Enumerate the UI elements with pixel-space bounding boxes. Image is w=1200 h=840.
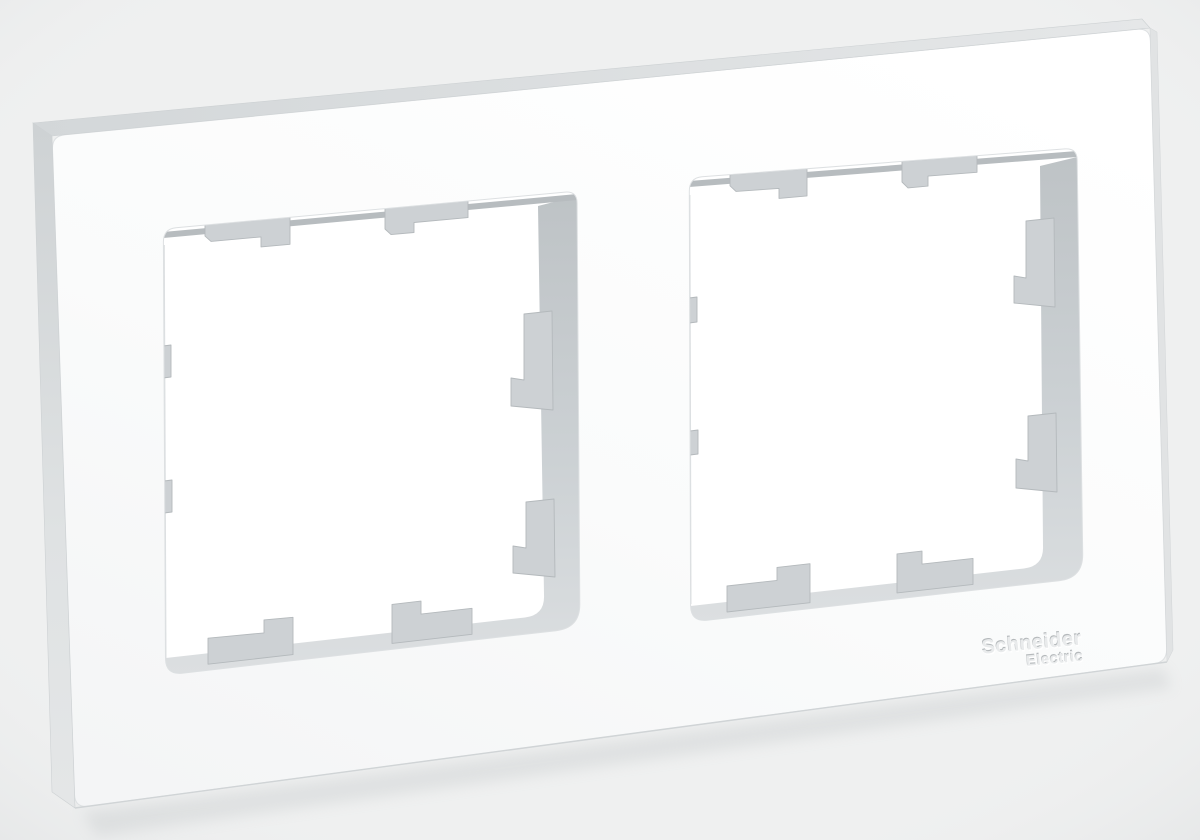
side-tab-left-lower: [690, 430, 698, 455]
right-window-backing: [684, 143, 1090, 627]
product-photo-stage: Schneider Schneider Schneider Electric E…: [0, 0, 1200, 840]
product-photo: Schneider Schneider Schneider Electric E…: [0, 0, 1200, 840]
left-window-backing: [158, 185, 588, 680]
side-tab-left-upper: [689, 297, 697, 323]
